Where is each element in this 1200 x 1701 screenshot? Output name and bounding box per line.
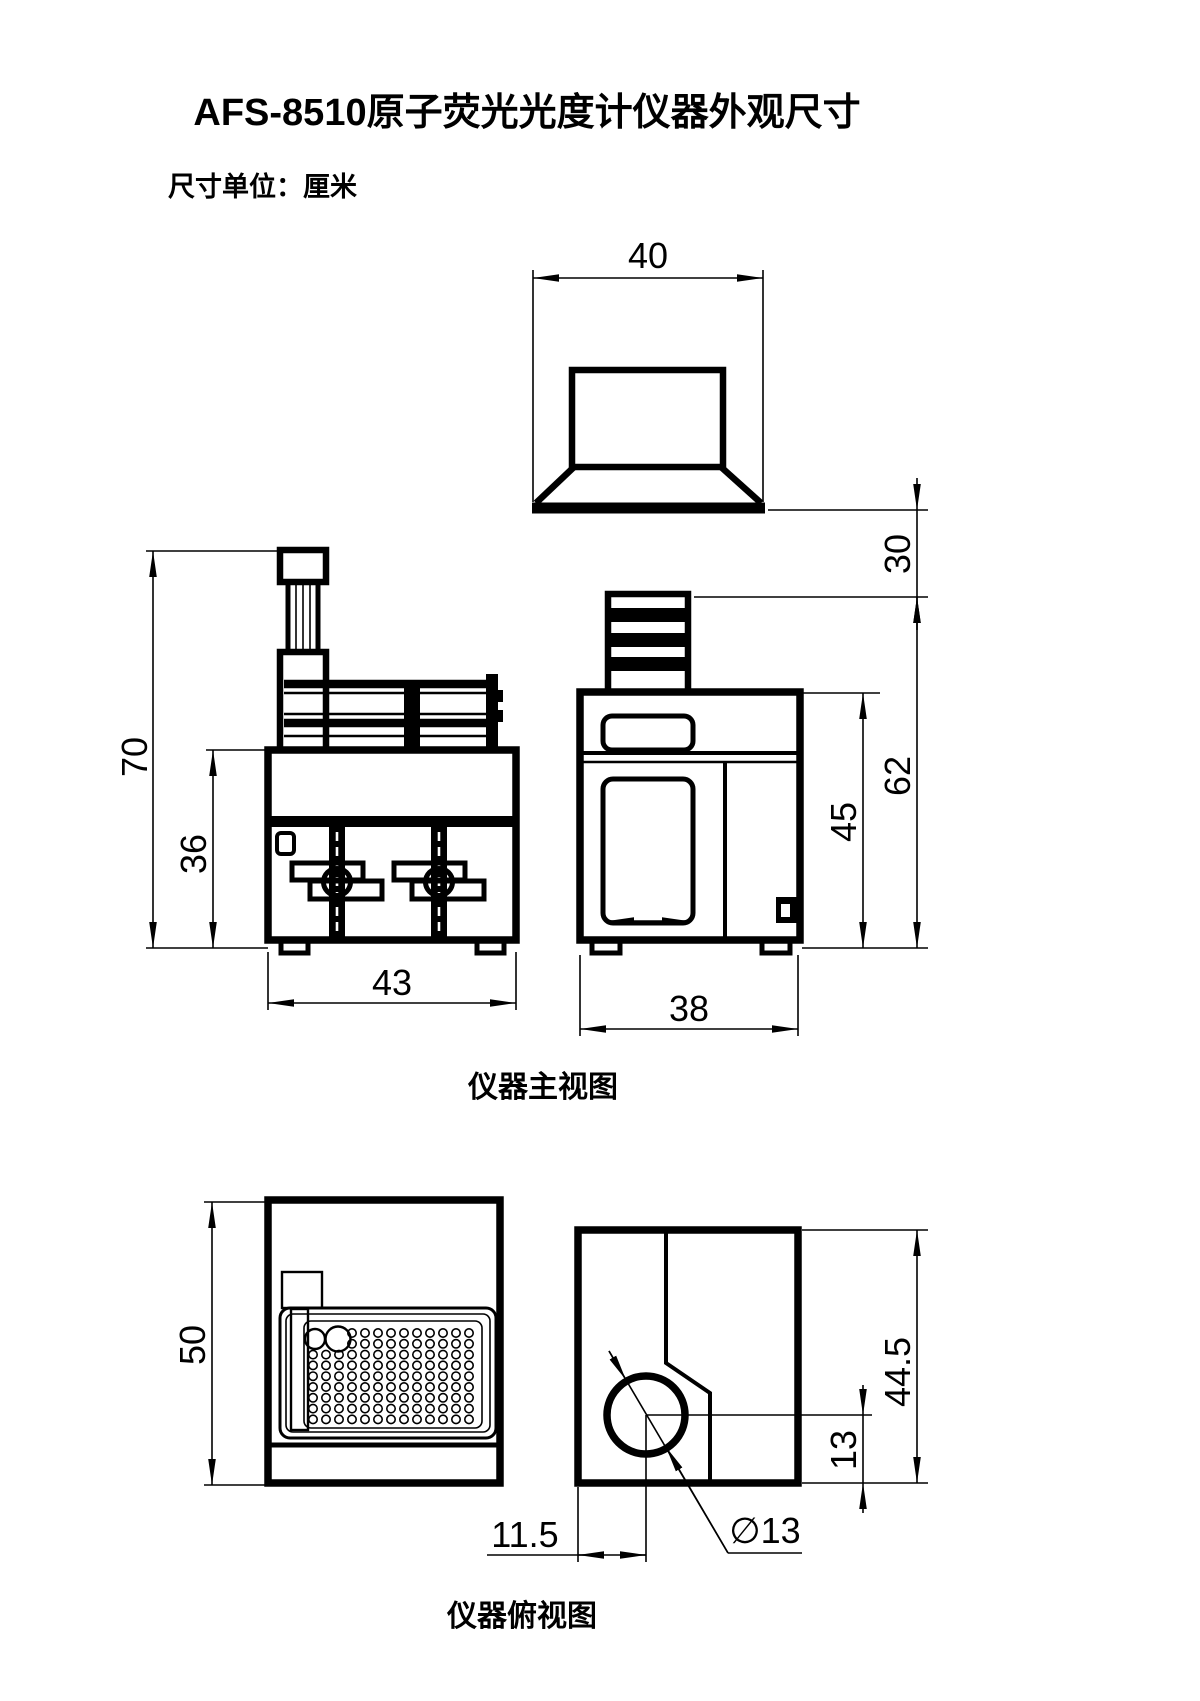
sample-hole — [335, 1361, 343, 1369]
sample-hole — [452, 1394, 460, 1402]
stack-stripe — [611, 633, 685, 647]
dim-right-width: 38 — [580, 955, 798, 1036]
sample-hole — [400, 1372, 408, 1380]
sample-hole — [322, 1350, 330, 1358]
sample-hole — [400, 1383, 408, 1391]
sample-hole — [439, 1394, 447, 1402]
sample-hole — [387, 1372, 395, 1380]
sample-hole — [361, 1361, 369, 1369]
sample-hole — [322, 1372, 330, 1380]
sample-hole — [387, 1350, 395, 1358]
tray-arm — [291, 1309, 308, 1430]
sample-hole — [400, 1415, 408, 1423]
sample-hole — [348, 1361, 356, 1369]
dim-value-right-width: 38 — [669, 988, 709, 1029]
arrow-line — [609, 1351, 626, 1380]
foot — [592, 940, 620, 953]
dim-value-hole-from-left: 11.5 — [491, 1514, 558, 1555]
sample-hole — [426, 1415, 434, 1423]
lamp-skirt-left — [536, 467, 574, 503]
sample-hole — [452, 1340, 460, 1348]
sample-hole — [439, 1372, 447, 1380]
sample-hole — [452, 1329, 460, 1337]
sample-hole — [361, 1404, 369, 1412]
sample-hole — [374, 1361, 382, 1369]
sample-hole — [361, 1415, 369, 1423]
foot — [477, 940, 504, 953]
dim-value-total-height: 70 — [114, 737, 155, 777]
sample-hole — [439, 1383, 447, 1391]
dim-value-lamp-width: 40 — [628, 235, 668, 276]
sample-hole — [465, 1394, 473, 1402]
sample-hole — [374, 1350, 382, 1358]
sample-hole — [426, 1350, 434, 1358]
sample-hole — [400, 1350, 408, 1358]
sample-hole — [309, 1404, 317, 1412]
sample-hole — [426, 1329, 434, 1337]
tower-base-block — [280, 652, 326, 748]
sample-hole — [387, 1361, 395, 1369]
sample-hole — [465, 1329, 473, 1337]
sample-hole — [413, 1372, 421, 1380]
sample-hole — [400, 1404, 408, 1412]
sample-hole — [309, 1361, 317, 1369]
dim-value-front-width: 43 — [372, 962, 412, 1003]
sample-hole — [387, 1415, 395, 1423]
sample-hole — [348, 1394, 356, 1402]
dim-front-width: 43 — [268, 952, 516, 1010]
sample-hole — [322, 1383, 330, 1391]
lamp-skirt-right — [721, 467, 761, 503]
sample-hole — [309, 1394, 317, 1402]
sample-hole — [322, 1394, 330, 1402]
stack-stripe — [611, 657, 685, 671]
sample-hole — [413, 1350, 421, 1358]
sample-hole — [387, 1340, 395, 1348]
sample-hole — [426, 1340, 434, 1348]
door-panel — [603, 779, 693, 923]
sample-hole — [348, 1415, 356, 1423]
dim-right-total-height: 62 — [694, 597, 928, 948]
sample-hole — [426, 1383, 434, 1391]
sample-hole — [413, 1415, 421, 1423]
sample-hole — [426, 1394, 434, 1402]
sample-hole — [413, 1383, 421, 1391]
sample-hole — [452, 1415, 460, 1423]
lamp-top-view — [532, 370, 765, 508]
sample-hole — [374, 1329, 382, 1337]
sample-hole — [465, 1383, 473, 1391]
sample-hole — [322, 1361, 330, 1369]
dim-value-lamp-depth: 30 — [877, 534, 918, 574]
sample-hole — [439, 1340, 447, 1348]
sample-hole — [465, 1415, 473, 1423]
left-front-view — [268, 550, 516, 953]
dim-value-hole-diameter: ∅13 — [729, 1510, 800, 1551]
sample-hole — [426, 1404, 434, 1412]
stack-stripe — [611, 608, 685, 622]
dim-hole-from-left: 11.5 — [487, 1487, 646, 1562]
door-latch-notch — [781, 904, 790, 917]
sample-hole — [452, 1350, 460, 1358]
sample-hole — [348, 1372, 356, 1380]
sample-hole — [452, 1372, 460, 1380]
dim-value-sampler-depth: 50 — [172, 1325, 213, 1365]
rail-post-end — [486, 674, 498, 750]
sample-hole — [439, 1404, 447, 1412]
page-title: AFS-8510原子荧光光度计仪器外观尺寸 — [193, 92, 860, 134]
right-front-view — [580, 594, 800, 953]
dim-right-body-height: 45 — [802, 693, 928, 948]
sample-hole — [465, 1404, 473, 1412]
sample-hole — [322, 1404, 330, 1412]
display-window — [603, 716, 693, 750]
sample-hole — [413, 1329, 421, 1337]
dim-value-right-body-height: 45 — [823, 802, 864, 842]
sample-hole — [413, 1340, 421, 1348]
lamp-body-outline — [572, 370, 723, 467]
pump-valve-right — [394, 827, 484, 937]
sample-hole — [413, 1404, 421, 1412]
wash-cup — [326, 1327, 351, 1352]
sample-hole — [322, 1415, 330, 1423]
sample-hole — [309, 1350, 317, 1358]
tray-holes — [309, 1329, 473, 1424]
sample-hole — [426, 1372, 434, 1380]
panel-divider — [268, 816, 516, 827]
sample-hole — [400, 1329, 408, 1337]
sample-hole — [361, 1329, 369, 1337]
sample-hole — [335, 1383, 343, 1391]
sample-hole — [465, 1372, 473, 1380]
dimension-drawing: AFS-8510原子荧光光度计仪器外观尺寸 尺寸单位：厘米 40 30 — [0, 0, 1200, 1696]
sample-hole — [361, 1394, 369, 1402]
drawing-page: AFS-8510原子荧光光度计仪器外观尺寸 尺寸单位：厘米 40 30 — [0, 0, 1200, 1696]
foot — [762, 940, 790, 953]
sample-hole — [439, 1361, 447, 1369]
sample-hole — [335, 1394, 343, 1402]
dim-main-depth: 44.5 — [802, 1230, 928, 1483]
sample-hole — [361, 1340, 369, 1348]
dim-value-body-height: 36 — [173, 834, 214, 874]
sample-hole — [335, 1415, 343, 1423]
sample-hole — [374, 1415, 382, 1423]
sample-hole — [400, 1340, 408, 1348]
main-outline — [578, 1230, 798, 1483]
sample-hole — [400, 1361, 408, 1369]
sample-hole — [413, 1394, 421, 1402]
sample-hole — [361, 1350, 369, 1358]
sample-hole — [452, 1404, 460, 1412]
sample-hole — [309, 1383, 317, 1391]
sample-hole — [452, 1383, 460, 1391]
sample-hole — [452, 1361, 460, 1369]
sample-hole — [335, 1404, 343, 1412]
rail-post-middle — [404, 680, 420, 750]
pump-valve-left — [292, 827, 382, 937]
cabinet-outline — [580, 692, 800, 940]
sample-hole — [348, 1350, 356, 1358]
sample-hole — [439, 1415, 447, 1423]
top-view-label: 仪器俯视图 — [446, 1599, 597, 1633]
sample-hole — [374, 1404, 382, 1412]
sample-hole — [387, 1394, 395, 1402]
sample-hole — [374, 1340, 382, 1348]
sample-hole — [361, 1372, 369, 1380]
front-view-label: 仪器主视图 — [467, 1071, 618, 1104]
tray-big-circles — [305, 1327, 351, 1352]
side-slot — [277, 833, 294, 854]
sample-hole — [465, 1350, 473, 1358]
sample-hole — [426, 1361, 434, 1369]
sampler-top-view — [268, 1200, 500, 1483]
sample-hole — [387, 1329, 395, 1337]
dim-sampler-depth: 50 — [172, 1202, 268, 1485]
dim-body-height: 36 — [173, 750, 268, 948]
sample-hole — [361, 1383, 369, 1391]
arrow-line — [666, 1447, 728, 1553]
sample-hole — [374, 1383, 382, 1391]
sample-hole — [387, 1404, 395, 1412]
dim-value-main-depth: 44.5 — [877, 1337, 918, 1407]
sample-hole — [335, 1372, 343, 1380]
unit-note: 尺寸单位：厘米 — [168, 171, 357, 202]
sample-hole — [374, 1394, 382, 1402]
sample-hole — [309, 1372, 317, 1380]
sample-hole — [413, 1361, 421, 1369]
sample-hole — [465, 1340, 473, 1348]
sampler-corner-box — [282, 1272, 322, 1308]
sample-hole — [387, 1383, 395, 1391]
sample-hole — [439, 1329, 447, 1337]
sample-hole — [309, 1415, 317, 1423]
foot — [281, 940, 308, 953]
sample-hole — [465, 1361, 473, 1369]
rail-post-tab — [498, 710, 503, 722]
sample-hole — [348, 1383, 356, 1391]
dim-hole-from-bottom: 13 — [823, 1385, 864, 1513]
sample-hole — [374, 1372, 382, 1380]
dim-value-right-total-height: 62 — [877, 756, 918, 796]
tower-cap — [280, 550, 326, 582]
sample-hole — [400, 1394, 408, 1402]
sample-hole — [348, 1404, 356, 1412]
dim-lamp-depth: 30 — [768, 478, 928, 630]
right-top-view — [578, 1230, 872, 1562]
cabinet-outline — [268, 750, 516, 940]
sample-hole — [439, 1350, 447, 1358]
dim-value-hole-from-bottom: 13 — [823, 1430, 864, 1470]
rail-post-tab — [498, 690, 503, 702]
